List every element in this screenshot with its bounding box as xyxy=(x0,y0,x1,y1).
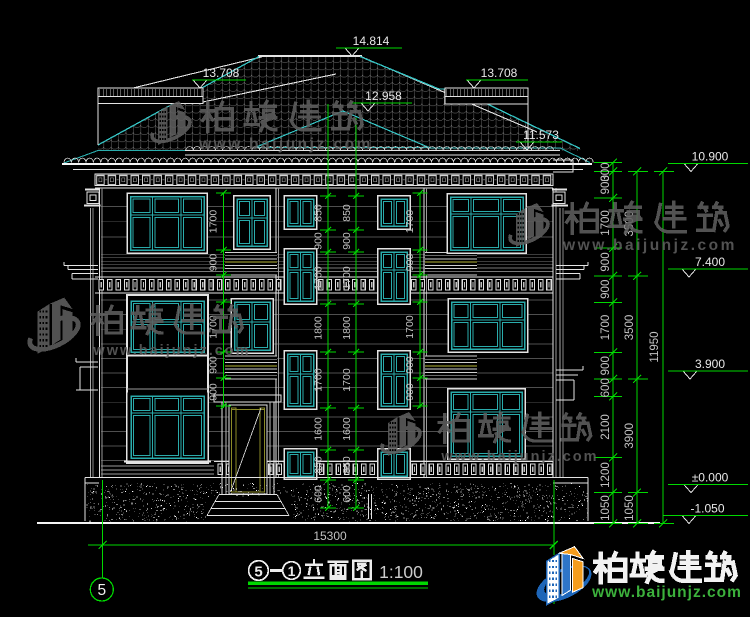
svg-text:600: 600 xyxy=(313,485,325,503)
svg-text:3500: 3500 xyxy=(624,315,636,341)
svg-text:1800: 1800 xyxy=(313,316,325,340)
svg-text:1700: 1700 xyxy=(404,210,416,234)
svg-text:1200: 1200 xyxy=(600,462,612,488)
svg-text:11950: 11950 xyxy=(649,331,661,362)
svg-text:900: 900 xyxy=(404,254,416,272)
svg-text:850: 850 xyxy=(313,204,325,222)
svg-text:1: 1 xyxy=(288,563,296,579)
svg-text:10.900: 10.900 xyxy=(692,150,729,164)
svg-text:15300: 15300 xyxy=(313,529,347,543)
svg-text:www.baijunjz.com: www.baijunjz.com xyxy=(440,449,598,465)
svg-text:1600: 1600 xyxy=(313,417,325,441)
svg-text:900: 900 xyxy=(404,383,416,401)
svg-text:1600: 1600 xyxy=(341,417,353,441)
svg-text:1800: 1800 xyxy=(341,316,353,340)
svg-text:13.708: 13.708 xyxy=(203,66,240,80)
svg-text:1700: 1700 xyxy=(208,210,220,234)
svg-text:900: 900 xyxy=(600,356,612,375)
svg-text:11.573: 11.573 xyxy=(523,128,559,142)
svg-text:5: 5 xyxy=(254,564,262,581)
svg-text:±0.000: ±0.000 xyxy=(692,471,729,485)
svg-text:600: 600 xyxy=(341,485,353,503)
svg-text:7.400: 7.400 xyxy=(695,255,725,269)
svg-text:13.708: 13.708 xyxy=(481,66,518,80)
svg-text:900: 900 xyxy=(404,356,416,374)
svg-text:1700: 1700 xyxy=(600,315,612,341)
svg-text:1700: 1700 xyxy=(341,368,353,392)
svg-text:1700: 1700 xyxy=(404,315,416,339)
svg-text:5: 5 xyxy=(97,582,106,599)
svg-text:1:100: 1:100 xyxy=(379,562,423,582)
svg-text:1050: 1050 xyxy=(600,495,612,521)
svg-text:1700: 1700 xyxy=(313,368,325,392)
svg-text:900: 900 xyxy=(600,280,612,299)
svg-text:900: 900 xyxy=(208,383,220,401)
svg-text:850: 850 xyxy=(341,456,353,474)
svg-text:900: 900 xyxy=(208,254,220,272)
svg-text:www.baijunjz.com: www.baijunjz.com xyxy=(92,343,250,359)
svg-text:2100: 2100 xyxy=(600,414,612,440)
svg-text:900: 900 xyxy=(600,175,612,194)
svg-text:14.814: 14.814 xyxy=(353,34,390,48)
svg-text:1700: 1700 xyxy=(313,266,325,290)
svg-text:900: 900 xyxy=(341,232,353,250)
svg-text:www.baijunjz.com: www.baijunjz.com xyxy=(591,584,742,601)
svg-text:1050: 1050 xyxy=(624,495,636,521)
svg-text:www.baijunjz.com: www.baijunjz.com xyxy=(562,237,737,254)
svg-text:600: 600 xyxy=(600,378,612,397)
svg-text:900: 900 xyxy=(600,252,612,271)
svg-text:850: 850 xyxy=(341,204,353,222)
svg-text:www.baijunjz.com: www.baijunjz.com xyxy=(198,136,373,153)
svg-text:1700: 1700 xyxy=(341,266,353,290)
svg-text:12.958: 12.958 xyxy=(365,89,402,103)
svg-text:3900: 3900 xyxy=(624,423,636,449)
svg-text:-1.050: -1.050 xyxy=(690,502,724,516)
svg-text:900: 900 xyxy=(313,232,325,250)
svg-text:3.900: 3.900 xyxy=(695,357,725,371)
svg-text:850: 850 xyxy=(313,456,325,474)
